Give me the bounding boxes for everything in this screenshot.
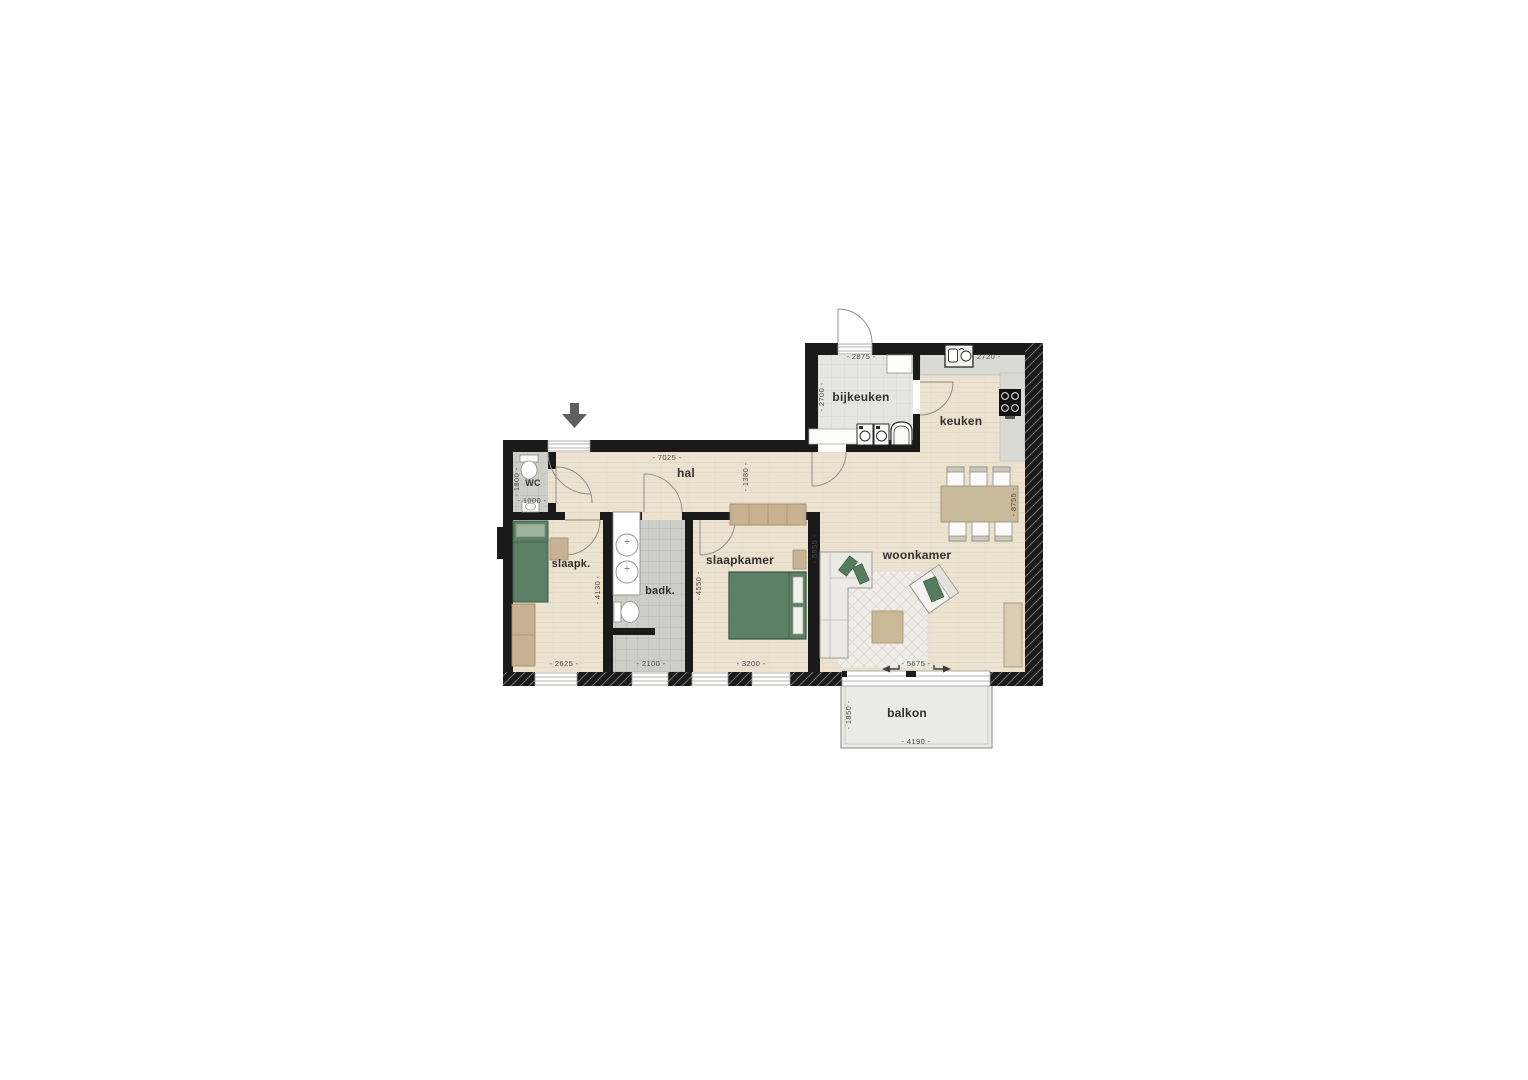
slaapk-bed — [513, 521, 548, 602]
wc-toilet — [520, 455, 538, 479]
room-label-slaapkamer: slaapkamer — [706, 553, 774, 567]
entrance-arrow-icon — [562, 403, 587, 428]
dim-bijkeuken-width: - 2875 - — [846, 352, 875, 361]
window-badk — [632, 673, 668, 685]
dim-woonkamer-width: - 5675 - — [901, 659, 930, 668]
kitchen-sink — [945, 345, 973, 367]
dining-table — [941, 486, 1018, 522]
badk-toilet — [614, 602, 639, 623]
dim-wc-width: - 1000 - — [517, 496, 546, 505]
dim-balkon-width: - 4190 - — [901, 737, 930, 746]
dim-badk-width: - 2100 - — [636, 659, 665, 668]
window-slaapkamer-1 — [692, 673, 728, 685]
slaapkamer-wardrobe — [730, 504, 806, 525]
window-slaapkamer-2 — [752, 673, 790, 685]
room-label-badk: badk. — [645, 585, 675, 597]
window-slaapk — [535, 673, 577, 685]
dim-wc-depth: - 1800 - — [512, 467, 521, 496]
floorplan-svg: WC hal slaapk. badk. slaapkamer woonkame… — [0, 0, 1528, 1080]
slaapkamer-nightstand — [793, 550, 806, 569]
dim-keuken-width: - 2720 - — [971, 352, 1000, 361]
room-label-slaapk: slaapk. — [552, 558, 591, 570]
slaapk-wardrobe — [512, 604, 535, 666]
room-label-bijkeuken: bijkeuken — [832, 390, 889, 404]
dim-hal-width: - 7025 - — [652, 453, 681, 462]
dim-balkon-depth: - 1850 - — [844, 700, 853, 729]
entrance-door-frame — [548, 441, 590, 451]
room-label-hal: hal — [677, 466, 695, 480]
dim-bijkeuken-depth: - 2700 - — [817, 382, 826, 411]
room-label-balkon: balkon — [887, 706, 927, 720]
bijkeuken-counter — [809, 429, 857, 444]
slaapk-nightstand — [550, 538, 568, 560]
laundry-tub — [891, 422, 912, 445]
badk-washbasin — [613, 512, 640, 595]
coffee-table — [872, 611, 903, 643]
bijkeuken-cabinet — [887, 355, 912, 373]
dim-right-side-depth: - 8755 - — [1009, 487, 1018, 516]
floorplan-page: WC hal slaapk. badk. slaapkamer woonkame… — [0, 0, 1528, 1080]
dim-slaapkamer-depth: - 4550 - — [694, 571, 703, 600]
room-label-keuken: keuken — [940, 414, 983, 428]
door-bijkeuken-exterior — [838, 309, 872, 343]
dim-slaapkamer-width: - 3200 - — [736, 659, 765, 668]
room-label-wc: WC — [525, 478, 541, 488]
tv-cabinet — [1004, 603, 1022, 667]
dim-slaapk-width: - 2625 - — [549, 659, 578, 668]
right-wall-hatched — [1025, 343, 1043, 686]
room-label-woonkamer: woonkamer — [882, 548, 952, 562]
dim-woonkamer-depth: - 5955 - — [810, 534, 819, 563]
washer — [857, 424, 873, 445]
stove — [999, 389, 1021, 419]
dryer — [874, 424, 889, 445]
slaapkamer-bed — [729, 572, 806, 639]
dim-hal-depth: - 1380 - — [741, 462, 750, 491]
dim-slaapk-depth: - 4130 - — [593, 575, 602, 604]
